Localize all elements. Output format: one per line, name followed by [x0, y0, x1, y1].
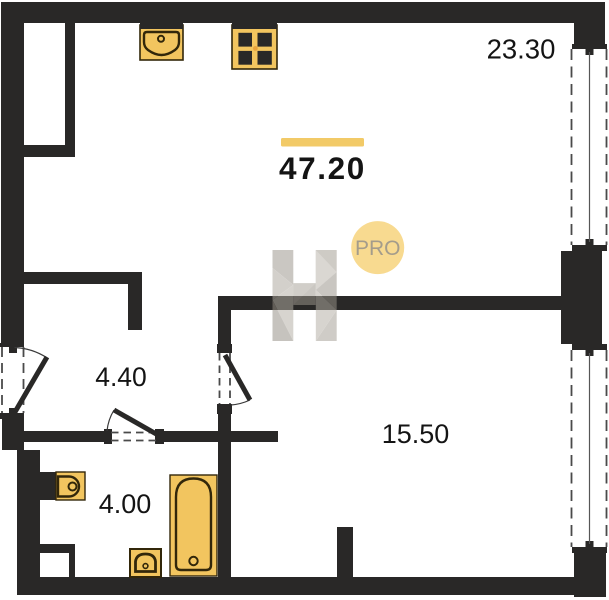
svg-text:47.20: 47.20	[279, 150, 366, 186]
svg-text:15.50: 15.50	[382, 419, 450, 449]
svg-text:4.40: 4.40	[95, 362, 147, 392]
svg-text:4.00: 4.00	[99, 489, 152, 519]
svg-text:23.30: 23.30	[487, 34, 556, 65]
svg-text:PRO: PRO	[355, 237, 401, 260]
